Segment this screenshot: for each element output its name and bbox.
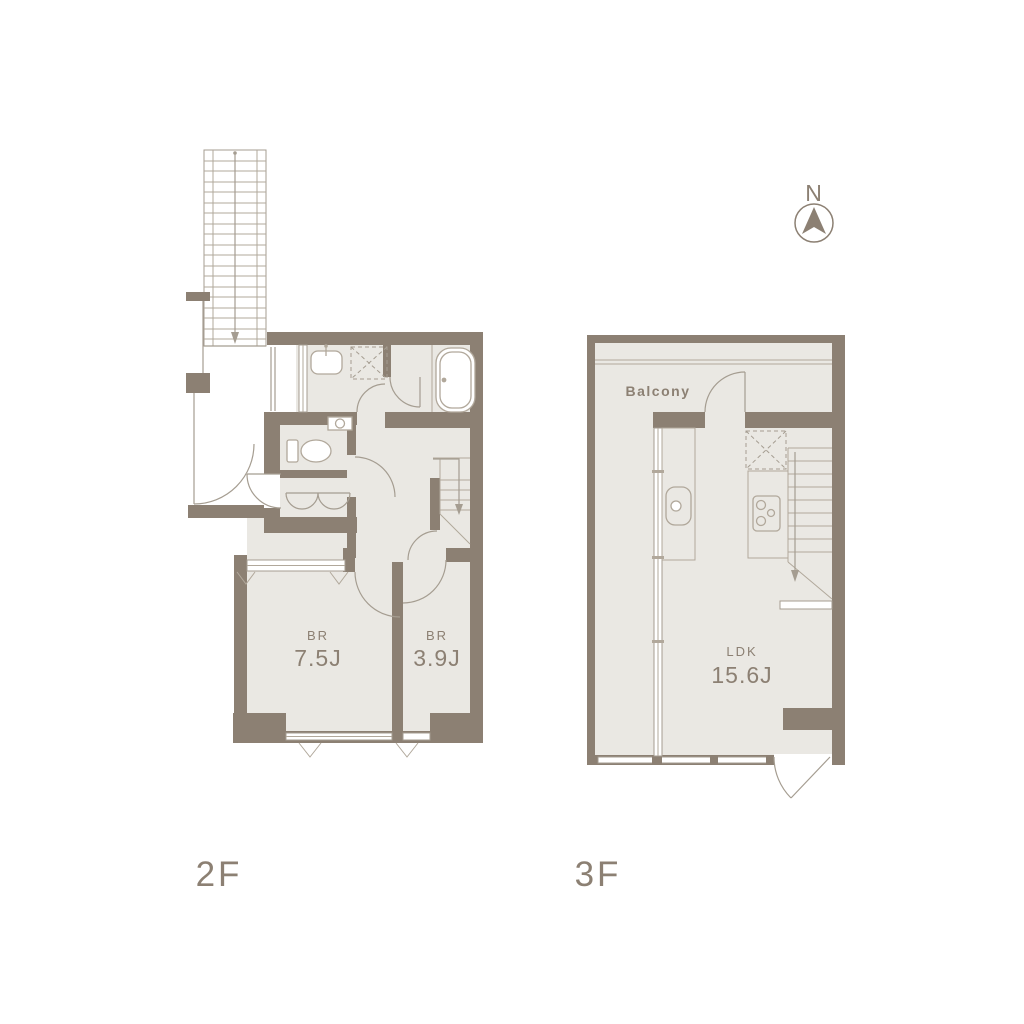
toilet-icon [287,440,331,462]
balcony-label: Balcony [626,383,691,399]
stair-landing [780,601,832,609]
bathtub-icon [432,345,475,412]
window [403,733,430,740]
floor-label-2f: 2F [196,855,243,894]
room-size-br2: 3.9J [413,645,460,671]
room-label-ldk: LDK [726,644,757,659]
exterior-stairs-icon [204,150,266,346]
porch-door-arc [247,474,281,508]
equipment-box-icon [328,417,352,430]
entrance-door-arc [194,444,254,504]
north-compass: N [795,180,833,242]
floor-area-3f [595,343,832,757]
window [598,757,774,763]
floor-plan-2f: BR 7.5J BR 3.9J [186,150,483,757]
north-arrow-icon [802,207,826,234]
floor-plan-3f: Balcony LDK 15.6J [587,335,845,798]
room-label-br2: BR [426,628,448,643]
floor-plan-drawing: BR 7.5J BR 3.9J [0,0,1024,1024]
room-label-br1: BR [307,628,329,643]
floor-label-3f: 3F [575,855,622,894]
room-size-br1: 7.5J [294,645,341,671]
north-label: N [805,180,823,206]
floor-plan-page: BR 7.5J BR 3.9J [0,0,1024,1024]
room-size-ldk: 15.6J [711,662,772,688]
